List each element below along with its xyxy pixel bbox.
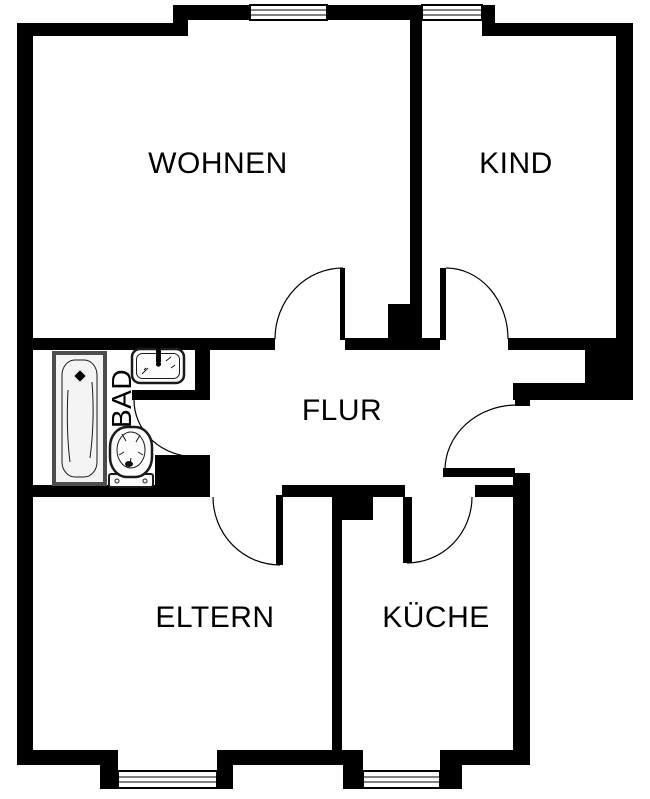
wall-wohnen-kind-divider xyxy=(410,5,422,350)
window-eltern-bay xyxy=(118,771,217,788)
wall-flur-top-mid xyxy=(345,338,440,350)
door-leaf xyxy=(276,495,283,565)
wall-top-band-a xyxy=(188,5,250,20)
bathtub-icon xyxy=(54,353,105,484)
faucet xyxy=(156,341,161,362)
wall-kitchen-corner-block xyxy=(332,497,373,520)
wall-entry-stub xyxy=(515,398,530,406)
door-swing-arc xyxy=(275,268,343,339)
wall-entry-bar xyxy=(513,383,633,400)
window-wohnen xyxy=(250,5,327,20)
wall-top-step xyxy=(173,5,188,36)
door-leaf xyxy=(340,268,345,340)
door-swing-arc xyxy=(407,497,472,563)
wall-bottom-a xyxy=(17,750,118,765)
room-label-kind: KIND xyxy=(479,147,553,180)
room-label-flur: FLUR xyxy=(302,394,382,427)
room-label-bad: BAD xyxy=(106,369,137,428)
wall-left-exterior xyxy=(17,23,33,765)
wall-kitchen-left xyxy=(332,497,342,750)
wall-top-wohnen xyxy=(17,23,173,36)
door-kueche xyxy=(403,497,472,563)
toilet-icon xyxy=(109,427,153,487)
door-swing-arc xyxy=(445,405,517,470)
door-leaf xyxy=(443,468,515,477)
room-label-eltern: ELTERN xyxy=(155,601,274,634)
wall-kitchen-top-right xyxy=(475,485,515,497)
wall-kind-top-corner xyxy=(482,5,495,23)
wall-right-exterior-upper xyxy=(616,23,633,400)
window-kind xyxy=(422,5,482,20)
wall-eltern-bay-right-pier xyxy=(217,750,233,789)
door-entry xyxy=(443,405,517,477)
door-leaf xyxy=(132,390,195,400)
door-leaf xyxy=(440,268,446,340)
room-label-wohnen: WOHNEN xyxy=(148,147,288,180)
wall-eltern-top-bar xyxy=(282,485,405,497)
door-leaf xyxy=(403,497,412,563)
floor-plan: WOHNEN KIND FLUR BAD ELTERN KÜCHE xyxy=(0,0,650,799)
wall-eltern-bay-left-pier xyxy=(100,765,118,789)
window-kueche-bay xyxy=(363,771,440,788)
door-wohnen xyxy=(275,268,345,340)
wall-bottom-c xyxy=(462,750,530,765)
wall-right-exterior-lower xyxy=(513,473,530,765)
door-eltern xyxy=(213,495,283,565)
door-swing-arc xyxy=(213,497,280,565)
room-label-kueche: KÜCHE xyxy=(382,601,490,634)
floor-plan-drawing: WOHNEN KIND FLUR BAD ELTERN KÜCHE xyxy=(0,0,650,799)
door-swing-arc xyxy=(446,268,508,339)
wall-bath-right-upper xyxy=(195,350,210,400)
door-kind xyxy=(440,268,508,340)
wall-bath-right-lower xyxy=(155,455,210,487)
wall-top-band-b xyxy=(327,5,411,20)
wall-kind-top xyxy=(482,23,633,36)
wall-kueche-bay-right-pier xyxy=(440,750,462,789)
wall-kueche-bay-left-pier xyxy=(343,750,363,789)
